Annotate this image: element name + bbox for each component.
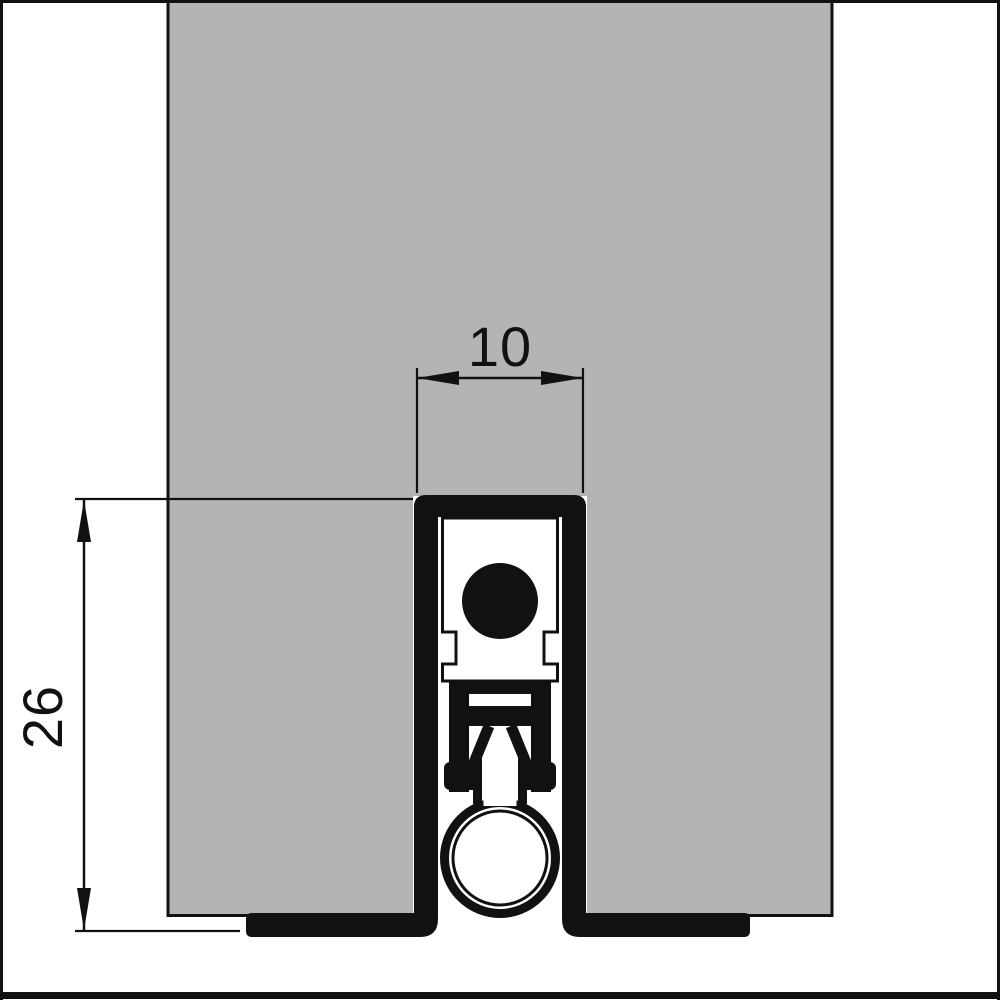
floor-line (0, 992, 1000, 999)
dimension-label-groove-width: 10 (468, 315, 532, 378)
mechanism-crossbar (449, 706, 551, 726)
seal-neck-right-wall (518, 764, 527, 804)
seal-carrier (443, 518, 558, 681)
border-top (0, 0, 1000, 3)
seal-neck-left-wall (473, 764, 482, 804)
housing-top-web (414, 495, 586, 517)
arrowhead-down-icon (77, 888, 91, 930)
border-left (0, 0, 3, 1000)
cross-section-diagram: 10 26 (0, 0, 1000, 1000)
dimension-label-seal-height: 26 (11, 685, 74, 749)
pivot-pin (462, 563, 538, 639)
technical-drawing-page: 10 26 (0, 0, 1000, 1000)
seal-neck-opening (484, 758, 517, 806)
arrowhead-up-icon (77, 500, 91, 542)
